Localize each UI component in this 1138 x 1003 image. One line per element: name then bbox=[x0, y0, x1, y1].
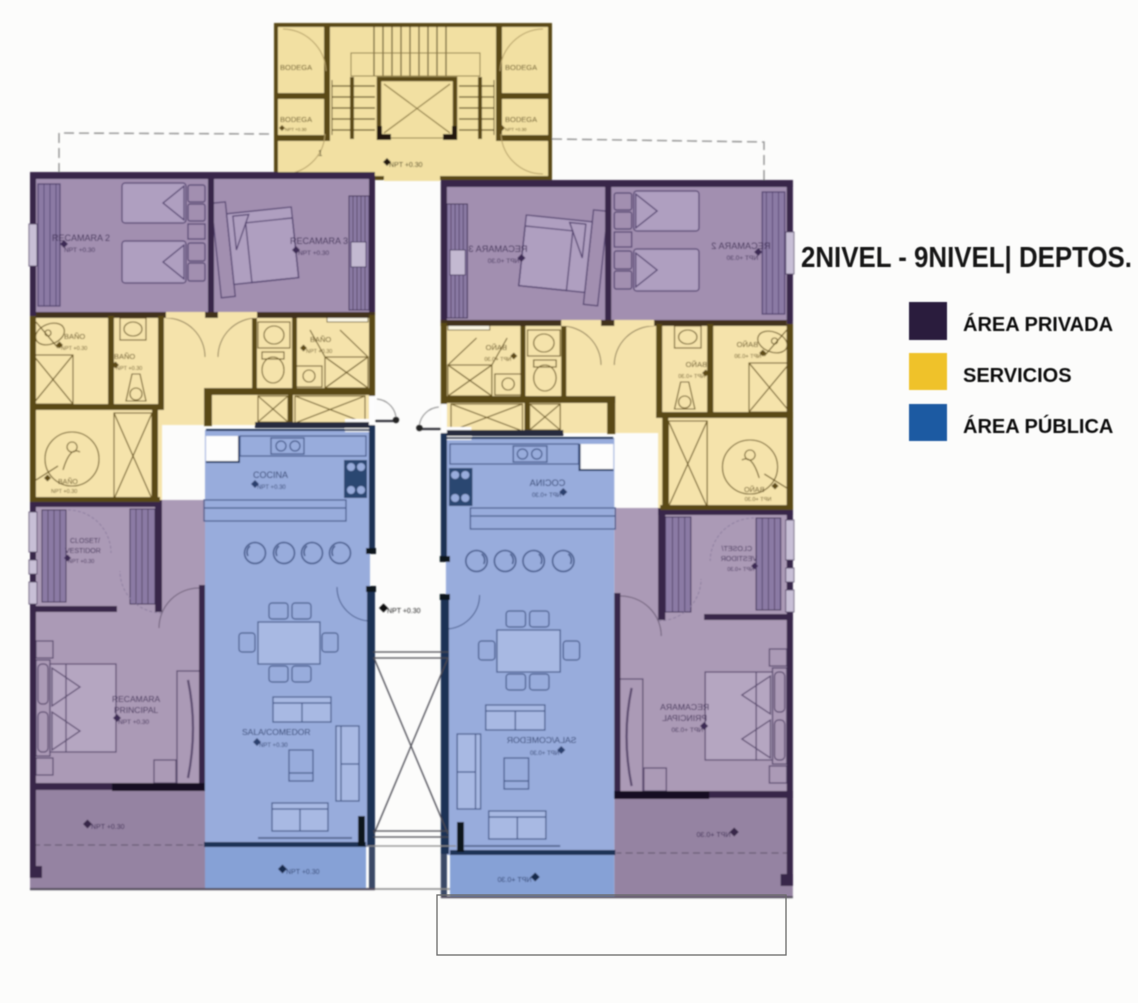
svg-text:2NIVEL - 9NIVEL| DEPTOS.: 2NIVEL - 9NIVEL| DEPTOS. bbox=[801, 242, 1132, 274]
svg-text:NPT +0.30: NPT +0.30 bbox=[505, 127, 527, 132]
svg-text:NPT +0.30: NPT +0.30 bbox=[389, 162, 423, 169]
svg-text:ÁREA PÚBLICA: ÁREA PÚBLICA bbox=[963, 414, 1113, 438]
svg-text:BODEGA: BODEGA bbox=[280, 63, 312, 72]
svg-text:ÁREA PRIVADA: ÁREA PRIVADA bbox=[963, 313, 1113, 336]
svg-text:BODEGA: BODEGA bbox=[505, 115, 537, 124]
svg-text:1: 1 bbox=[318, 149, 323, 158]
svg-text:BODEGA: BODEGA bbox=[505, 63, 537, 72]
svg-text:BODEGA: BODEGA bbox=[280, 115, 312, 124]
svg-text:NPT +0.30: NPT +0.30 bbox=[387, 608, 421, 615]
svg-text:SERVICIOS: SERVICIOS bbox=[963, 365, 1072, 387]
svg-text:NPT +0.30: NPT +0.30 bbox=[285, 127, 307, 132]
